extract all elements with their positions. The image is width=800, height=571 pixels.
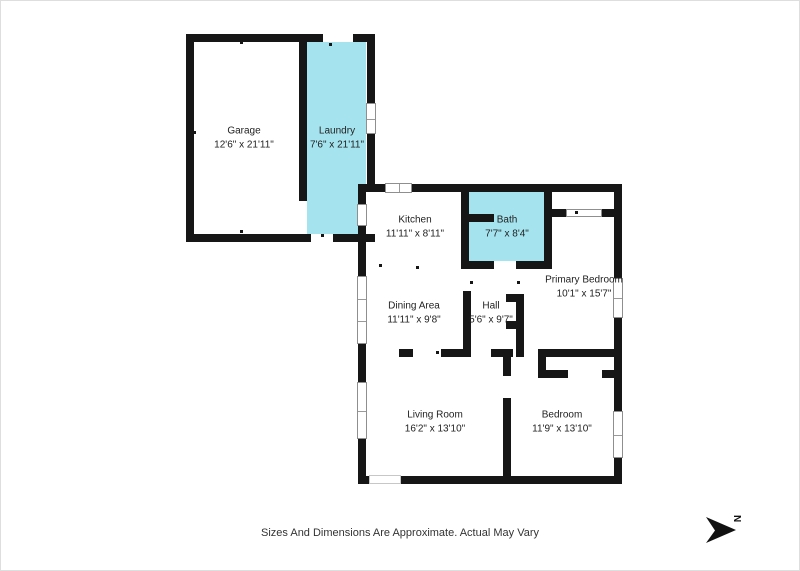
wall-tick [522, 476, 525, 479]
wall [186, 234, 311, 242]
wall [367, 34, 375, 103]
room-label-garage: Garage12'6" x 21'11" [214, 125, 274, 152]
wall-tick [583, 188, 586, 191]
room-dimensions: 7'7" x 8'4" [485, 227, 529, 241]
wall-tick [429, 476, 432, 479]
wall-tick [379, 264, 382, 267]
room-name: Bath [485, 214, 529, 228]
wall [614, 318, 622, 411]
wall-tick [193, 131, 196, 134]
wall [538, 349, 622, 357]
room-name: Laundry [310, 125, 364, 139]
wall [602, 370, 614, 378]
wall [516, 294, 524, 357]
wall [503, 357, 511, 376]
wall [552, 209, 566, 217]
wall-tick [436, 351, 439, 354]
wall [358, 184, 366, 204]
wall [186, 34, 323, 42]
wall-tick [329, 43, 332, 46]
room-dimensions: 11'11" x 9'8" [387, 313, 440, 327]
room-name: Bedroom [532, 409, 592, 423]
room-name: Dining Area [387, 300, 440, 314]
wall [491, 349, 513, 357]
wall [461, 261, 494, 269]
room-name: Living Room [405, 409, 465, 423]
room-dimensions: 11'9" x 13'10" [532, 422, 592, 436]
window [566, 209, 602, 217]
floor-plan: Garage12'6" x 21'11"Laundry7'6" x 21'11"… [1, 1, 799, 570]
room-label-living-room: Living Room16'2" x 13'10" [405, 409, 465, 436]
wall [299, 42, 307, 201]
wall [544, 192, 552, 269]
wall [602, 209, 614, 217]
wall [401, 476, 622, 484]
window [385, 183, 412, 193]
wall-tick [321, 234, 324, 237]
wall-tick [240, 41, 243, 44]
room-dimensions: 5'6" x 9'7" [469, 313, 513, 327]
room-dimensions: 12'6" x 21'11" [214, 138, 274, 152]
wall-tick [517, 281, 520, 284]
wall-tick [416, 266, 419, 269]
door-opening [369, 475, 401, 484]
room-label-laundry: Laundry7'6" x 21'11" [310, 125, 364, 152]
room-name: Kitchen [386, 214, 444, 228]
room-dimensions: 7'6" x 21'11" [310, 138, 364, 152]
wall [503, 398, 511, 476]
wall [358, 344, 366, 382]
window [357, 276, 367, 344]
wall [412, 184, 622, 192]
wall [614, 184, 622, 278]
window [613, 411, 623, 458]
room-label-hall: Hall5'6" x 9'7" [469, 300, 513, 327]
floorplan-image: Garage12'6" x 21'11"Laundry7'6" x 21'11"… [0, 0, 800, 571]
room-label-bedroom: Bedroom11'9" x 13'10" [532, 409, 592, 436]
room-name: Hall [469, 300, 513, 314]
wall [614, 458, 622, 484]
compass-letter: N [731, 515, 742, 522]
wall-tick [240, 230, 243, 233]
window [357, 204, 367, 226]
wall [186, 34, 194, 242]
compass-north-icon: N [703, 509, 749, 549]
wall [333, 234, 375, 242]
wall [516, 261, 552, 269]
room-label-kitchen: Kitchen11'11" x 8'11" [386, 214, 444, 241]
room-name: Primary Bedroom [545, 274, 623, 288]
wall-tick [470, 281, 473, 284]
wall [441, 349, 471, 357]
wall [538, 370, 568, 378]
wall [358, 226, 366, 276]
room-label-primary-bedroom: Primary Bedroom10'1" x 15'7" [545, 274, 623, 301]
wall-tick [436, 188, 439, 191]
room-label-dining-area: Dining Area11'11" x 9'8" [387, 300, 440, 327]
window [366, 103, 376, 134]
room-dimensions: 16'2" x 13'10" [405, 422, 465, 436]
room-dimensions: 11'11" x 8'11" [386, 227, 444, 241]
wall [358, 476, 369, 484]
room-label-bath: Bath7'7" x 8'4" [485, 214, 529, 241]
room-dimensions: 10'1" x 15'7" [545, 287, 623, 301]
wall-tick [573, 351, 576, 354]
disclaimer-text: Sizes And Dimensions Are Approximate. Ac… [261, 527, 539, 539]
window [357, 382, 367, 439]
wall [461, 192, 469, 269]
room-name: Garage [214, 125, 274, 139]
wall-tick [616, 333, 619, 336]
wall-tick [575, 211, 578, 214]
wall [399, 349, 413, 357]
